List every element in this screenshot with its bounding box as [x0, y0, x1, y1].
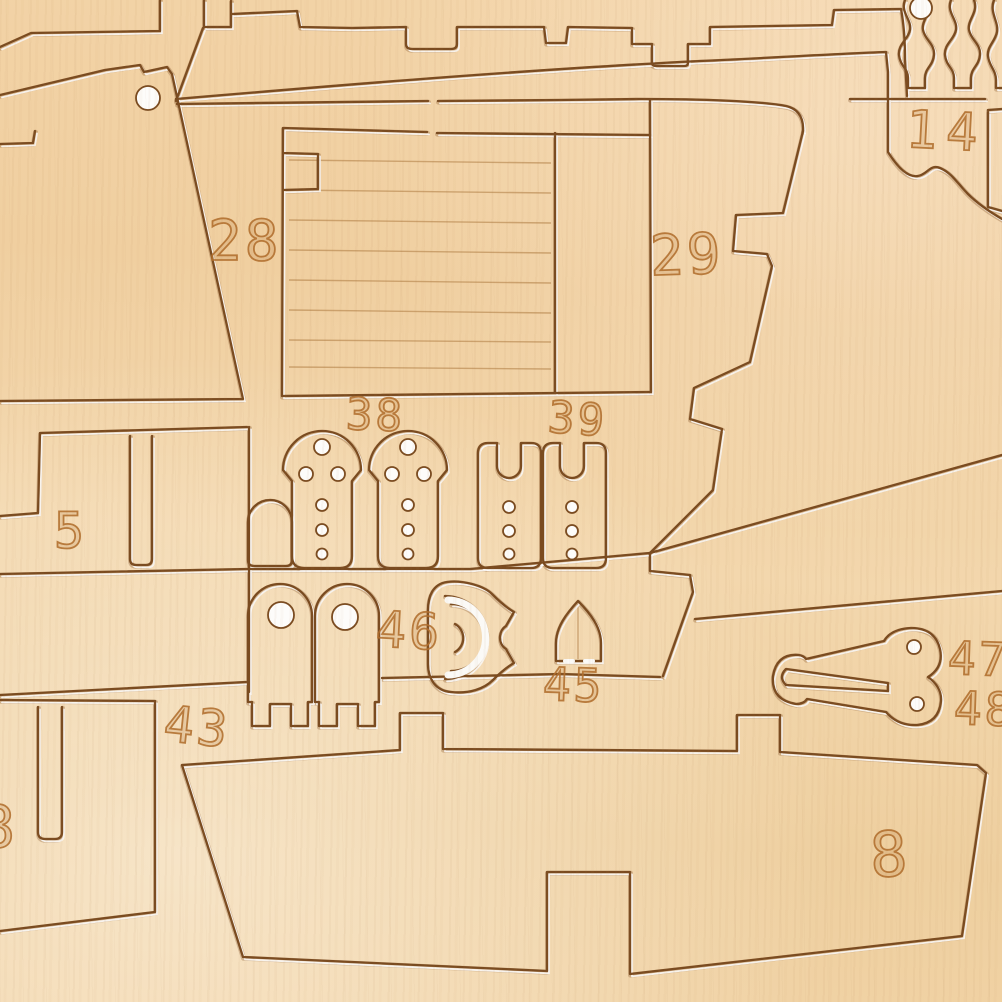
part-label-43: 43	[162, 699, 233, 756]
part-label-29: 29	[649, 227, 724, 286]
part-label-38: 38	[345, 393, 405, 439]
part-label-47: 47	[947, 635, 1002, 683]
part-label-39: 39	[547, 396, 609, 444]
plank-score-lines	[289, 160, 578, 659]
laser-cut-line-art	[0, 0, 1002, 1002]
part-label-28: 28	[208, 214, 281, 270]
part-label-14: 14	[905, 104, 988, 160]
part-label-8: 8	[868, 823, 912, 887]
part-label-5: 5	[54, 506, 87, 556]
plywood-kit-sheet-photo: 28 29 14 38 39 5 46 45 43 47 48 8 8	[0, 0, 1002, 1002]
part-label-48: 48	[953, 685, 1002, 733]
part-label-46: 46	[375, 604, 444, 657]
part-label-edge-partial: 8	[0, 798, 18, 856]
part-label-45: 45	[542, 661, 605, 709]
